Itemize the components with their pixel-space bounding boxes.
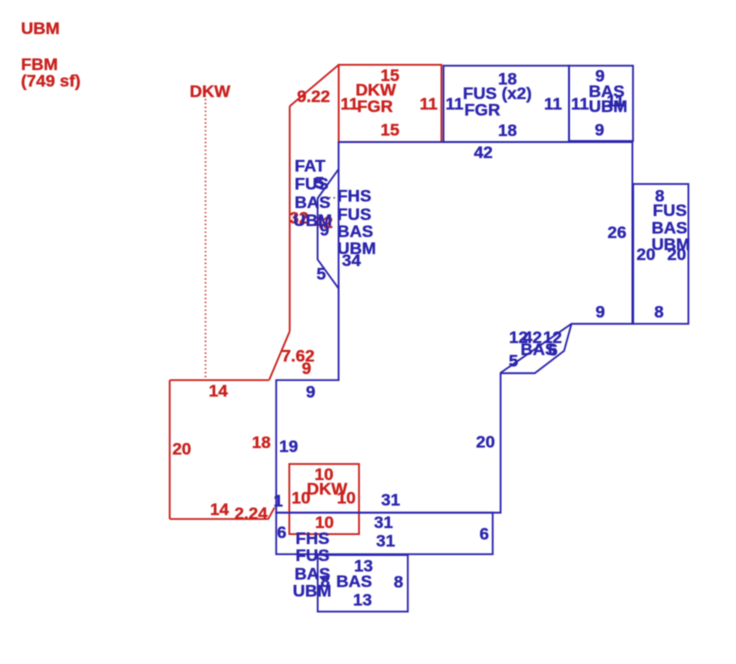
svg-text:9: 9 xyxy=(595,303,604,322)
svg-text:9: 9 xyxy=(302,359,311,378)
svg-text:15: 15 xyxy=(381,121,400,140)
svg-text:20: 20 xyxy=(476,433,495,452)
svg-text:DKW: DKW xyxy=(190,82,232,101)
svg-text:11: 11 xyxy=(607,92,625,111)
svg-text:11: 11 xyxy=(420,94,438,113)
svg-text:42: 42 xyxy=(474,143,493,162)
svg-text:6: 6 xyxy=(479,524,488,543)
svg-text:5: 5 xyxy=(316,265,325,284)
svg-text:BAS: BAS xyxy=(336,572,372,591)
svg-text:14: 14 xyxy=(209,382,228,401)
svg-text:UBM: UBM xyxy=(293,211,332,230)
svg-text:FGR: FGR xyxy=(464,100,500,119)
svg-text:11: 11 xyxy=(341,94,359,113)
svg-text:6: 6 xyxy=(548,341,557,360)
svg-text:26: 26 xyxy=(608,223,627,242)
svg-text:9: 9 xyxy=(306,382,315,401)
svg-text:20: 20 xyxy=(637,245,656,264)
svg-text:6: 6 xyxy=(277,523,286,542)
svg-text:9: 9 xyxy=(595,121,604,140)
svg-text:20: 20 xyxy=(172,439,191,458)
svg-text:8: 8 xyxy=(654,303,663,322)
svg-text:BAS: BAS xyxy=(295,193,331,212)
svg-text:31: 31 xyxy=(381,491,400,510)
svg-text:2.24: 2.24 xyxy=(234,504,268,523)
svg-text:FHS: FHS xyxy=(296,529,330,548)
svg-text:5: 5 xyxy=(509,351,518,370)
svg-text:(749 sf): (749 sf) xyxy=(21,72,81,91)
svg-text:18: 18 xyxy=(498,121,517,140)
svg-text:FUS: FUS xyxy=(295,175,329,194)
svg-text:14: 14 xyxy=(210,500,229,519)
svg-text:19: 19 xyxy=(279,437,298,456)
svg-text:10: 10 xyxy=(337,489,356,508)
svg-text:UBM: UBM xyxy=(21,19,60,38)
svg-text:31: 31 xyxy=(376,531,395,550)
svg-text:1: 1 xyxy=(273,492,282,511)
svg-text:10: 10 xyxy=(292,489,311,508)
svg-text:FHS: FHS xyxy=(337,187,371,206)
svg-text:FGR: FGR xyxy=(357,97,393,116)
svg-text:FAT: FAT xyxy=(295,157,326,176)
svg-text:8: 8 xyxy=(394,573,403,592)
svg-text:34: 34 xyxy=(342,251,361,270)
svg-text:20: 20 xyxy=(667,245,686,264)
svg-text:9.22: 9.22 xyxy=(297,87,330,106)
svg-text:11: 11 xyxy=(544,95,562,114)
svg-text:11: 11 xyxy=(446,95,464,114)
svg-text:FUS: FUS xyxy=(653,201,687,220)
svg-text:31: 31 xyxy=(374,513,393,532)
svg-text:11: 11 xyxy=(571,95,589,114)
svg-text:18: 18 xyxy=(252,433,271,452)
svg-text:8: 8 xyxy=(320,572,329,591)
svg-text:13: 13 xyxy=(353,591,372,610)
